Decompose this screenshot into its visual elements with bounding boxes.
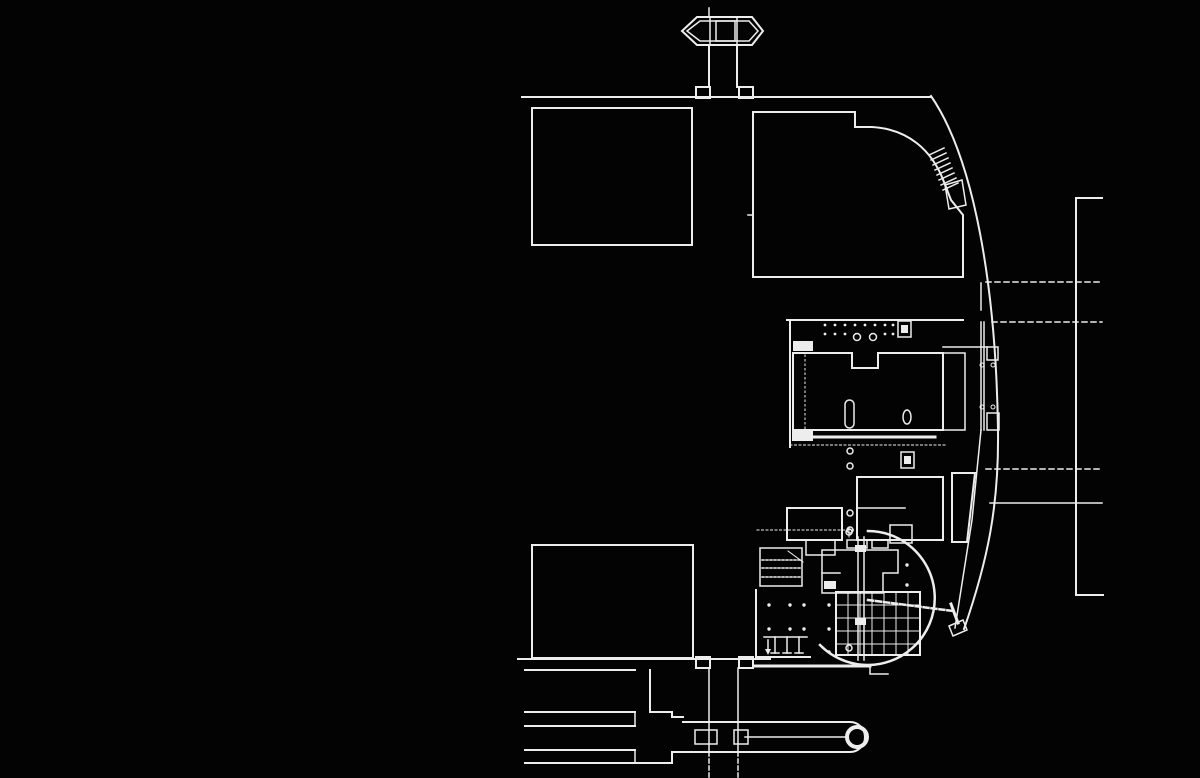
column-oval xyxy=(903,410,911,424)
lantern-inner-hex xyxy=(687,21,758,41)
elevator-car xyxy=(904,456,911,464)
northwest-court xyxy=(532,108,692,245)
west-pier xyxy=(792,430,813,441)
column xyxy=(844,333,847,336)
elevator-car xyxy=(901,325,908,333)
stair-enclosure xyxy=(760,548,802,586)
column xyxy=(834,333,837,336)
column xyxy=(824,333,827,336)
facade-joint xyxy=(991,363,995,367)
stair-tread xyxy=(929,148,944,155)
column xyxy=(824,324,827,327)
column xyxy=(892,324,895,327)
column xyxy=(884,333,887,336)
pavilion-base-step xyxy=(870,666,888,674)
west-wall xyxy=(756,590,810,657)
southwest-court xyxy=(532,545,693,658)
column xyxy=(788,627,791,630)
floor-plan-screenshot xyxy=(0,0,1200,778)
gallery-hall xyxy=(793,353,943,430)
upper-room xyxy=(806,540,835,555)
pool-approach-step xyxy=(650,670,683,717)
east-rooms xyxy=(943,353,965,430)
round-column xyxy=(847,448,853,454)
stair-tread xyxy=(933,158,948,165)
lantern-tower xyxy=(682,8,763,98)
round-column xyxy=(846,645,852,651)
room-b xyxy=(787,508,842,540)
round-column xyxy=(847,463,853,469)
central-block xyxy=(787,320,987,447)
west-pier xyxy=(793,341,813,351)
facade-bracket xyxy=(987,347,998,360)
column xyxy=(874,324,877,327)
entrance-pavilion xyxy=(756,525,958,665)
northeast-gallery xyxy=(753,112,963,277)
column xyxy=(864,324,867,327)
stair-tread xyxy=(931,153,946,160)
corridor-pier xyxy=(855,545,866,552)
column xyxy=(905,583,908,586)
door-leaf xyxy=(872,540,888,548)
facade-joint xyxy=(991,405,995,409)
lantern-core xyxy=(716,21,735,41)
wall-capsule xyxy=(845,400,854,428)
reference-grid xyxy=(986,198,1103,595)
north-wing xyxy=(522,97,966,277)
column xyxy=(834,324,837,327)
column xyxy=(802,627,805,630)
column xyxy=(827,603,830,606)
column xyxy=(905,563,908,566)
column xyxy=(767,603,770,606)
reflecting-pool xyxy=(683,722,867,752)
round-column xyxy=(870,334,877,341)
fan-arc xyxy=(820,531,935,665)
direction-arrow-head xyxy=(765,649,771,655)
column xyxy=(827,627,830,630)
lobby-pier xyxy=(824,581,836,589)
service-shaft-south xyxy=(696,657,753,778)
room-c-tapered xyxy=(952,473,975,542)
column xyxy=(854,324,857,327)
column xyxy=(767,627,770,630)
column xyxy=(844,324,847,327)
column xyxy=(788,603,791,606)
column xyxy=(892,333,895,336)
column xyxy=(802,603,805,606)
pool-approach-step xyxy=(635,752,683,763)
round-column xyxy=(847,510,853,516)
column xyxy=(884,324,887,327)
pool-pier xyxy=(695,730,717,744)
round-column xyxy=(854,334,861,341)
floor-plan-canvas xyxy=(0,0,1200,778)
